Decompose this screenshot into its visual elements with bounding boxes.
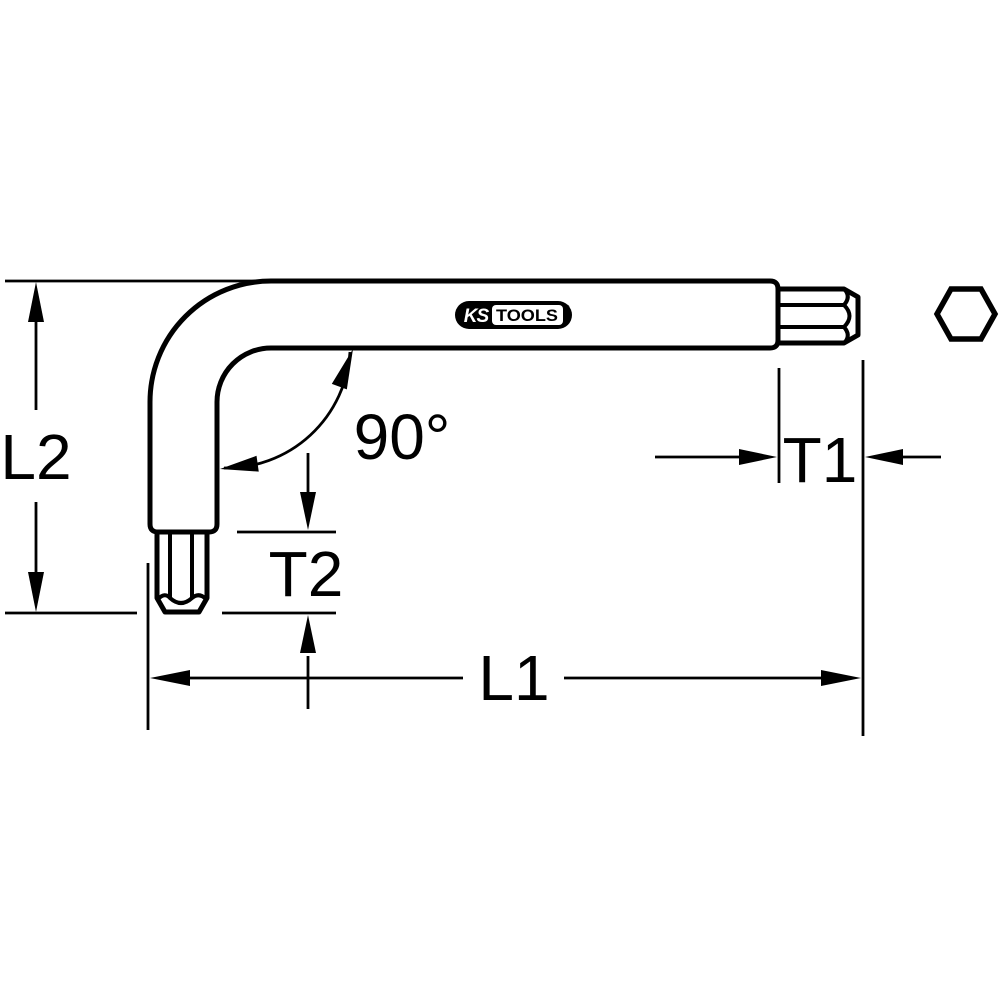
t2-arrowhead-up: [300, 615, 316, 653]
angle-annotation: 90°: [219, 346, 451, 477]
hex-key: KS TOOLS ®: [150, 281, 858, 612]
t2-arrowhead-down: [300, 492, 316, 530]
l1-arrowhead-right: [821, 670, 861, 686]
angle-arrowhead-left: [219, 456, 259, 477]
hex-tip-bottom-outline: [157, 532, 207, 612]
hex-tip-bottom: [157, 532, 207, 612]
angle-arrowhead-top: [332, 346, 361, 389]
dimension-label-t1: T1: [783, 424, 858, 496]
dimension-t2: T2: [222, 453, 343, 709]
t1-arrowhead-left: [865, 449, 903, 465]
dimension-label-t2: T2: [269, 538, 344, 610]
dimension-l1: L1: [148, 360, 863, 736]
logo-tools-text: TOOLS: [496, 306, 558, 325]
angle-arc: [224, 352, 350, 468]
l1-arrowhead-left: [150, 670, 190, 686]
ks-tools-logo: KS TOOLS ®: [455, 301, 572, 329]
logo-ks-text: KS: [464, 306, 490, 327]
hex-cross-section-icon: [937, 289, 995, 339]
l2-arrowhead-up: [28, 282, 44, 322]
dimension-t1: T1: [655, 368, 941, 496]
dimension-label-l1: L1: [478, 642, 549, 714]
hex-tip-right: [778, 289, 858, 343]
hex-key-technical-drawing: KS TOOLS ® L2 90°: [0, 0, 1000, 1000]
diagram-canvas: KS TOOLS ® L2 90°: [0, 0, 1000, 1000]
angle-label: 90°: [354, 401, 451, 473]
t1-arrowhead-right: [739, 449, 777, 465]
l2-arrowhead-down: [28, 572, 44, 612]
logo-registered-mark: ®: [564, 303, 570, 312]
dimension-label-l2: L2: [0, 421, 71, 493]
